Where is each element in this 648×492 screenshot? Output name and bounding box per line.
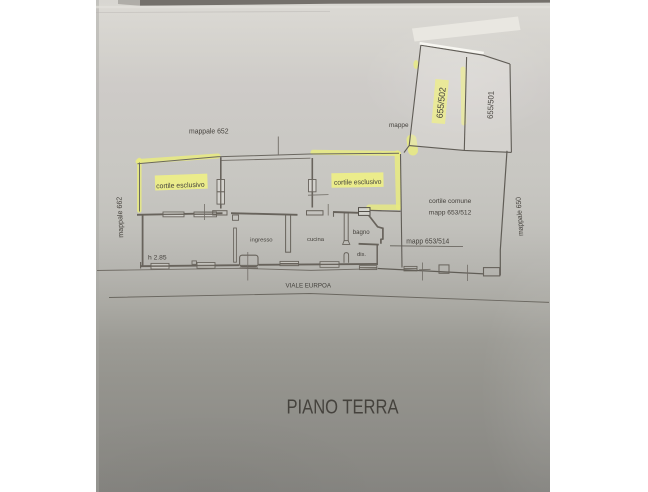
- svg-text:655/501: 655/501: [486, 90, 496, 119]
- svg-text:PIANO TERRA: PIANO TERRA: [287, 397, 399, 419]
- svg-text:h 2.85: h 2.85: [148, 254, 167, 261]
- svg-text:cucina: cucina: [307, 237, 325, 243]
- svg-text:mapp 653/512: mapp 653/512: [429, 210, 472, 217]
- svg-text:mappale 650: mappale 650: [514, 197, 526, 237]
- svg-text:mappale 652: mappale 652: [189, 129, 229, 136]
- svg-text:cortile esclusivo: cortile esclusivo: [334, 179, 382, 187]
- svg-text:bagno: bagno: [353, 229, 371, 236]
- svg-text:ingresso: ingresso: [250, 238, 273, 244]
- svg-text:mappale 662: mappale 662: [115, 197, 126, 238]
- svg-text:mapp 653/514: mapp 653/514: [406, 239, 449, 246]
- svg-text:cortile esclusivo: cortile esclusivo: [156, 182, 205, 191]
- svg-text:VIALE EURPOA: VIALE EURPOA: [286, 283, 332, 290]
- svg-text:mappe: mappe: [389, 122, 409, 129]
- svg-text:dis.: dis.: [357, 252, 366, 258]
- svg-text:cortile comune: cortile comune: [429, 198, 472, 205]
